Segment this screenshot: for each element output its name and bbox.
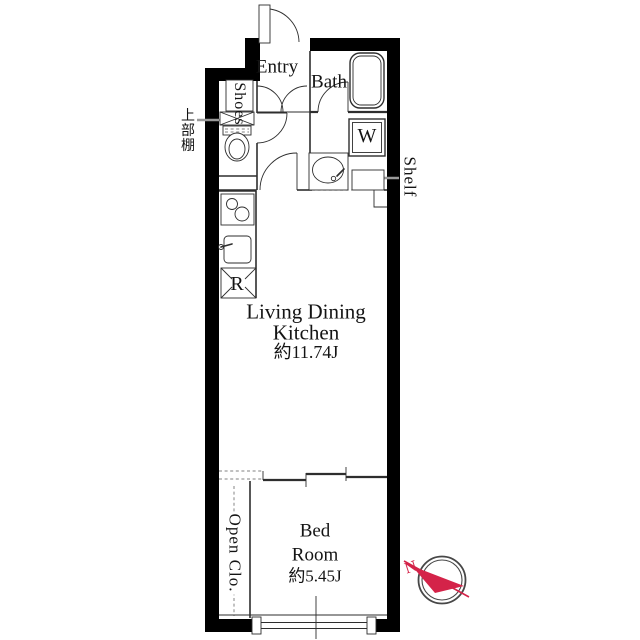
upper-shelf-label: 上部棚 xyxy=(179,108,193,153)
shoes-cabinet-label: Shoes xyxy=(231,82,247,125)
washing-machine-label: W xyxy=(358,126,377,146)
refrigerator-label: R xyxy=(230,274,243,294)
kitchen-sink xyxy=(224,236,251,263)
entry-bifold-doors xyxy=(257,86,307,112)
bedroom-name-line1: Bed xyxy=(300,522,331,541)
floor-plan: Entry Bath W Shelf Shoes 上部棚 Living Dini… xyxy=(0,0,640,640)
ldk-door xyxy=(260,153,297,190)
washbasin xyxy=(309,153,348,190)
ldk-name-line1: Living Dining xyxy=(246,302,366,323)
entry-label: Entry xyxy=(256,58,298,77)
bath-label: Bath xyxy=(311,73,347,92)
sliding-doors xyxy=(219,467,387,487)
bedroom-area-label: 約5.45J xyxy=(288,568,341,585)
bathtub xyxy=(350,53,384,108)
bedroom-window xyxy=(219,596,387,639)
shelf-niche xyxy=(352,170,384,190)
bedroom-name-line2: Room xyxy=(292,546,338,565)
shelf-label: Shelf xyxy=(402,157,419,198)
toilet-door xyxy=(257,113,287,143)
ldk-area-label: 約11.74J xyxy=(274,343,339,361)
open-closet-label: Open Clo. xyxy=(226,512,245,595)
toilet xyxy=(223,126,251,161)
entry-door xyxy=(259,5,299,43)
ldk-name-line2: Kitchen xyxy=(273,323,339,344)
stove xyxy=(221,194,254,225)
